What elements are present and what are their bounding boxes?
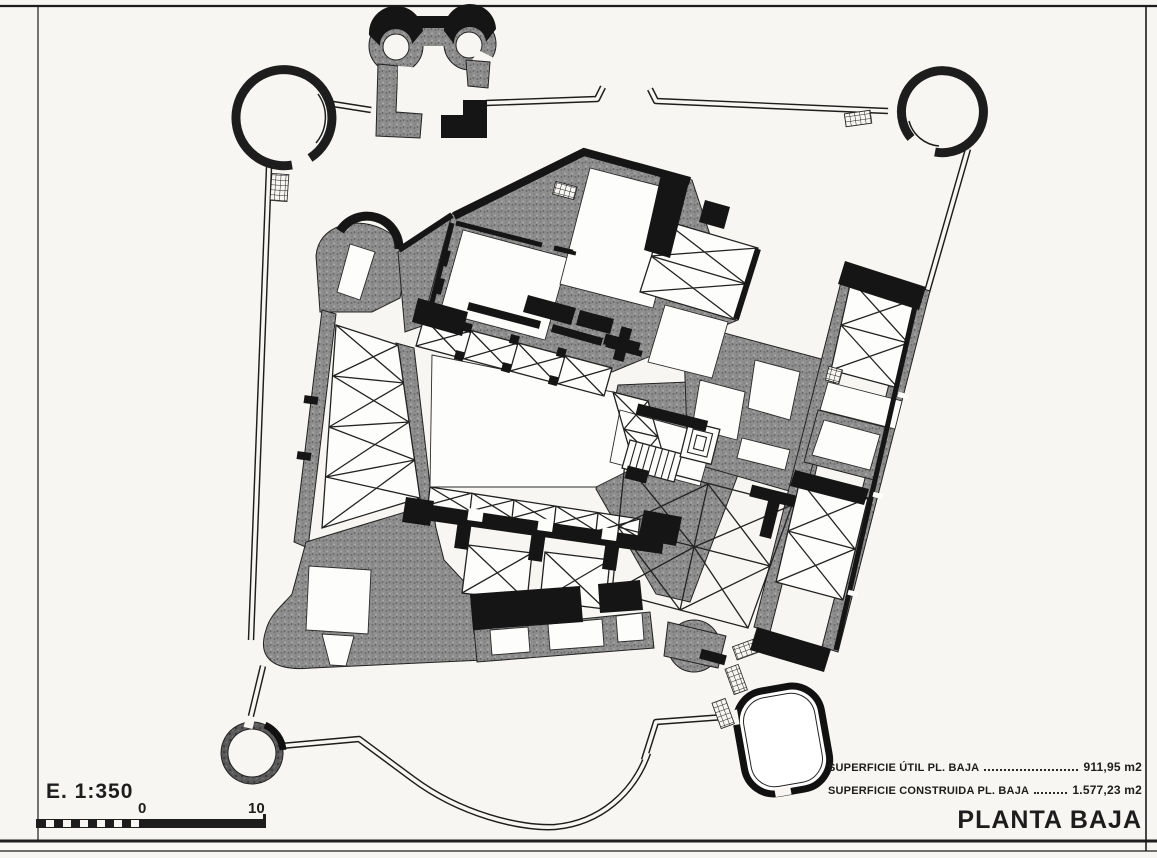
area-value-util: 911,95 m2 xyxy=(1083,760,1142,774)
scale-tick-0: 0 xyxy=(138,800,146,817)
wing-steps xyxy=(825,366,842,383)
area-row-util: SUPERFICIE ÚTIL PL. BAJA 911,95 m2 xyxy=(828,760,1142,774)
area-label-construida: SUPERFICIE CONSTRUIDA PL. BAJA xyxy=(828,785,1029,797)
scale-bar-solid-segment xyxy=(146,819,266,828)
scale-label: E. 1:350 xyxy=(46,780,133,804)
area-value-construida: 1.577,23 m2 xyxy=(1072,783,1142,797)
leader-dots xyxy=(984,769,1078,771)
gatehouse xyxy=(369,4,498,138)
area-label-util: SUPERFICIE ÚTIL PL. BAJA xyxy=(828,762,979,774)
bottom-niche-3 xyxy=(616,613,644,642)
bottom-niche-1 xyxy=(490,627,530,655)
floor-plan-drawing xyxy=(0,0,1157,858)
title-block: SUPERFICIE ÚTIL PL. BAJA 911,95 m2 SUPER… xyxy=(828,760,1142,835)
leader-dots xyxy=(1034,792,1067,794)
scanned-plan-page: E. 1:350 0 10 SUPERFICIE ÚTIL PL. BAJA 9… xyxy=(0,0,1157,858)
ne-round-tower xyxy=(844,71,983,153)
area-row-construida: SUPERFICIE CONSTRUIDA PL. BAJA 1.577,23 … xyxy=(828,783,1142,797)
se-oval-tower xyxy=(727,681,835,802)
scale-bar-dashed-segment xyxy=(36,819,148,828)
nw-round-tower xyxy=(236,70,332,202)
sw-round-tower xyxy=(221,715,283,784)
scale-bar xyxy=(36,818,268,827)
drawing-title: PLANTA BAJA xyxy=(828,806,1142,835)
scale-bar-end-tick xyxy=(263,814,266,827)
sw-square-room xyxy=(306,566,371,634)
